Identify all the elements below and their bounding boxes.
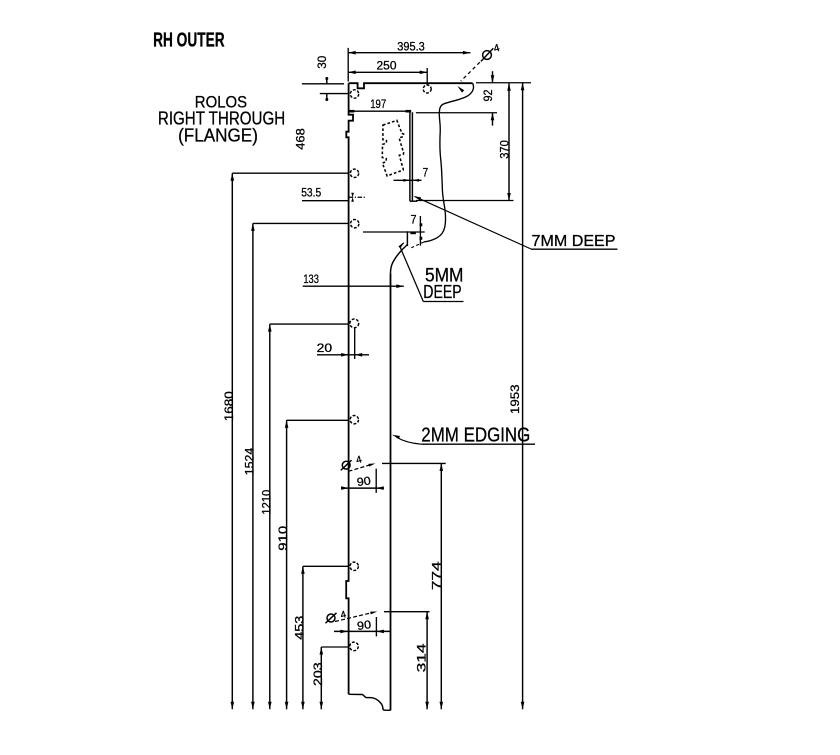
svg-text:(FLANGE): (FLANGE) (178, 126, 258, 146)
svg-text:DEEP: DEEP (423, 282, 461, 302)
svg-text:90: 90 (356, 475, 372, 489)
svg-text:4: 4 (492, 42, 501, 55)
svg-text:92: 92 (481, 89, 495, 101)
svg-text:7: 7 (423, 167, 429, 180)
svg-text:90: 90 (356, 619, 372, 633)
svg-text:1210: 1210 (259, 490, 273, 515)
svg-text:250: 250 (377, 60, 397, 73)
svg-text:53.5: 53.5 (301, 186, 321, 199)
svg-text:133: 133 (303, 273, 319, 286)
svg-text:1953: 1953 (508, 384, 522, 414)
svg-text:7: 7 (411, 214, 417, 227)
svg-text:314: 314 (415, 643, 429, 672)
svg-text:203: 203 (311, 662, 325, 686)
svg-text:910: 910 (276, 525, 290, 550)
svg-text:395.3: 395.3 (397, 40, 425, 53)
svg-text:1524: 1524 (243, 447, 257, 475)
svg-text:453: 453 (293, 615, 307, 639)
svg-text:RH OUTER: RH OUTER (153, 30, 225, 52)
svg-text:7MM DEEP: 7MM DEEP (532, 233, 616, 250)
svg-text:30: 30 (315, 55, 329, 68)
svg-text:2MM EDGING: 2MM EDGING (421, 424, 530, 446)
svg-text:4: 4 (355, 454, 364, 466)
svg-text:774: 774 (430, 561, 444, 590)
svg-text:197: 197 (370, 98, 386, 111)
svg-text:468: 468 (294, 128, 308, 150)
svg-text:1680: 1680 (222, 391, 236, 421)
svg-text:20: 20 (317, 342, 333, 355)
svg-text:370: 370 (498, 140, 512, 159)
